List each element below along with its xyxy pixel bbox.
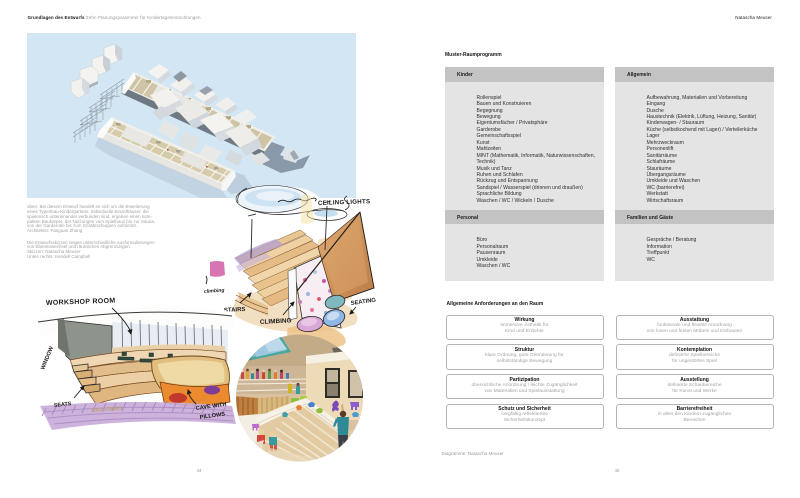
svg-text:WINDOW: WINDOW — [40, 345, 55, 371]
svg-text:WORKSHOP ROOM: WORKSHOP ROOM — [46, 298, 116, 307]
svg-text:SEATING: SEATING — [350, 297, 376, 307]
svg-text:climbing: climbing — [204, 288, 225, 295]
